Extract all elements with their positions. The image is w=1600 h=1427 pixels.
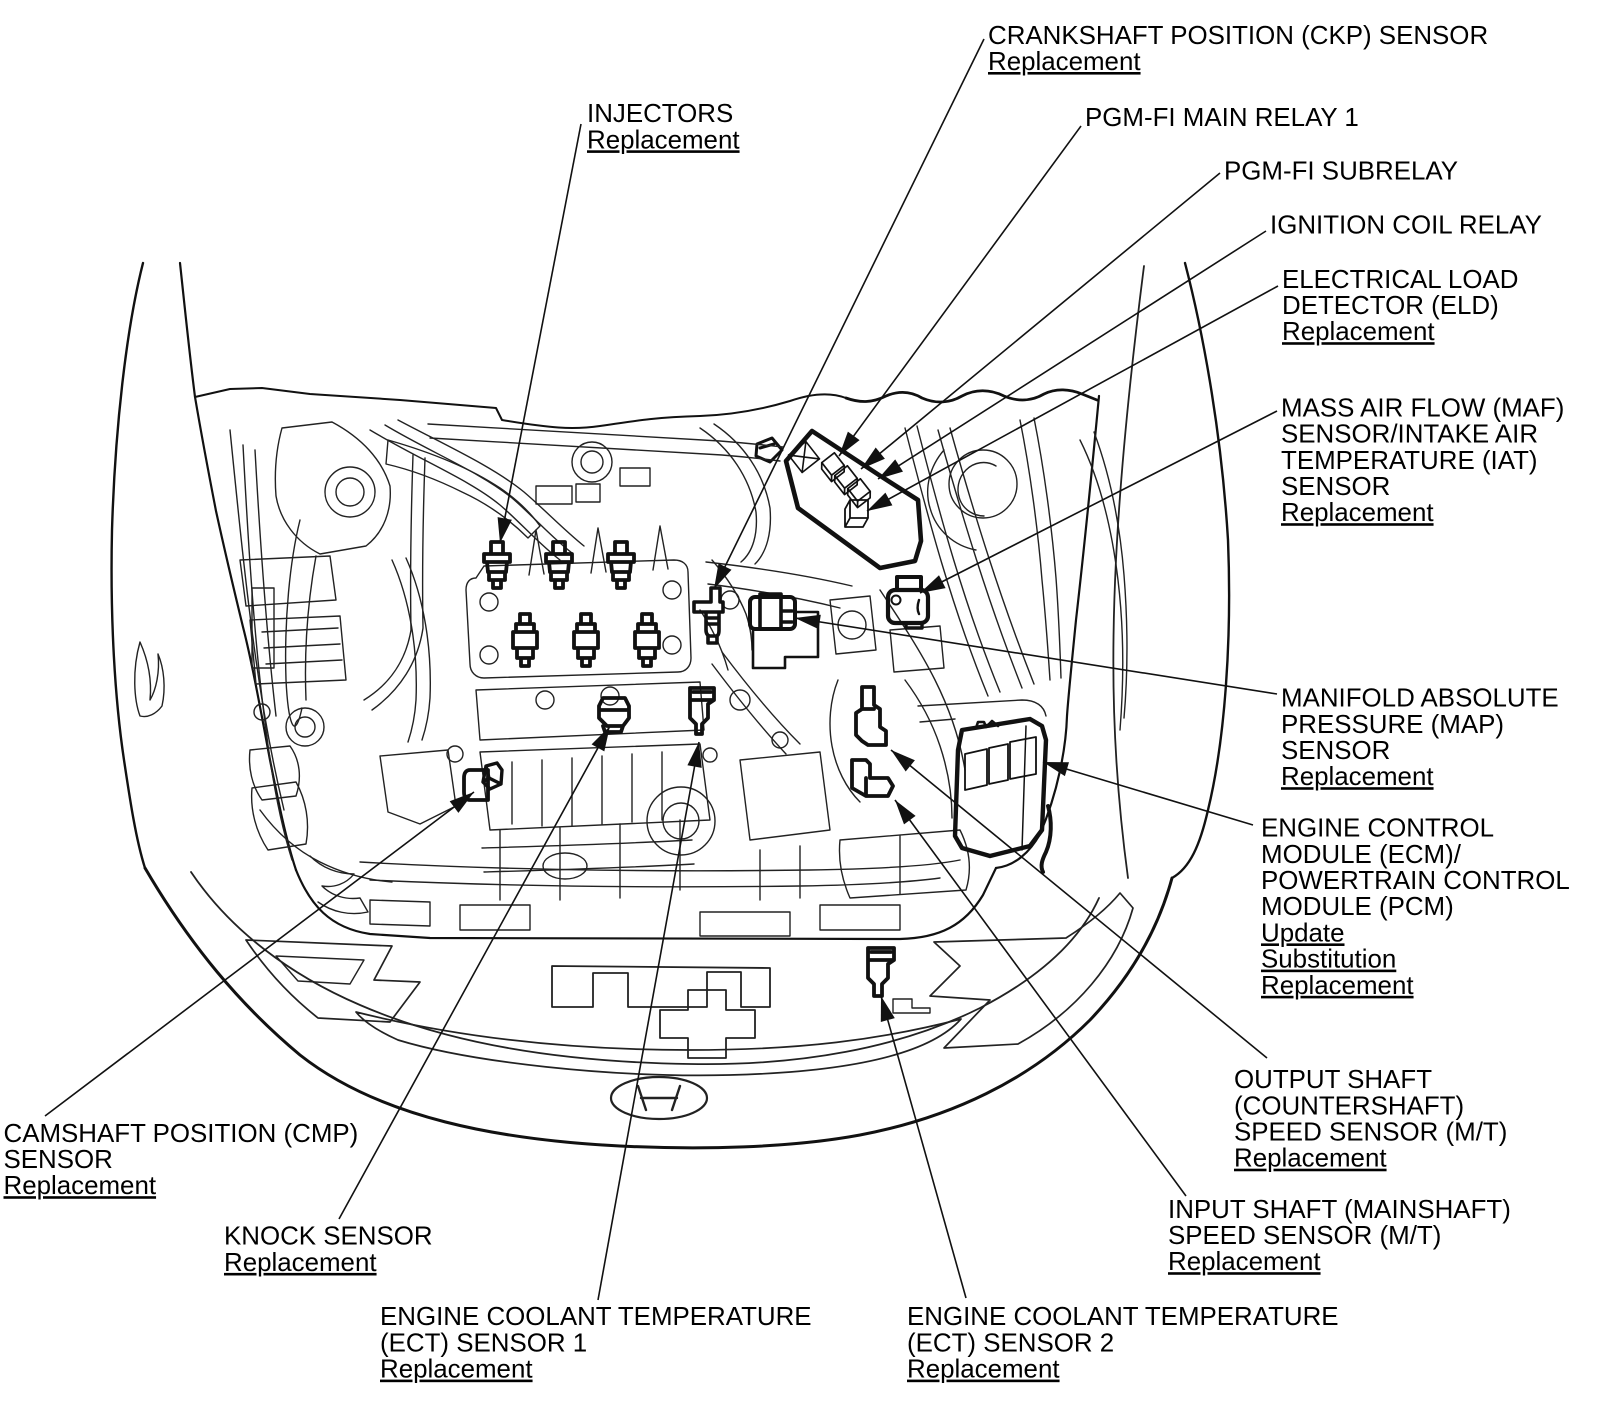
svg-text:IGNITION COIL RELAY: IGNITION COIL RELAY [1270,211,1542,239]
svg-text:Replacement: Replacement [907,1356,1060,1384]
svg-text:SENSOR/INTAKE AIR: SENSOR/INTAKE AIR [1281,421,1538,449]
svg-text:ENGINE COOLANT TEMPERATURE: ENGINE COOLANT TEMPERATURE [907,1303,1339,1331]
svg-text:Replacement: Replacement [988,48,1141,76]
svg-text:Replacement: Replacement [587,126,740,154]
svg-text:ELECTRICAL LOAD: ELECTRICAL LOAD [1282,266,1518,294]
svg-text:Update: Update [1261,919,1345,947]
svg-text:Replacement: Replacement [1234,1145,1387,1173]
svg-text:MANIFOLD ABSOLUTE: MANIFOLD ABSOLUTE [1281,685,1559,713]
svg-text:Replacement: Replacement [1281,763,1434,791]
svg-text:OUTPUT SHAFT: OUTPUT SHAFT [1234,1066,1432,1094]
svg-text:POWERTRAIN CONTROL: POWERTRAIN CONTROL [1261,867,1570,895]
svg-text:ENGINE CONTROL: ENGINE CONTROL [1261,815,1494,843]
svg-text:Replacement: Replacement [1281,499,1434,527]
svg-text:PGM-FI MAIN RELAY 1: PGM-FI MAIN RELAY 1 [1085,104,1359,132]
svg-text:Replacement: Replacement [1282,318,1435,346]
svg-text:INPUT SHAFT (MAINSHAFT): INPUT SHAFT (MAINSHAFT) [1168,1196,1511,1224]
svg-text:SENSOR: SENSOR [1281,473,1390,501]
svg-text:SENSOR: SENSOR [4,1146,113,1174]
svg-text:SPEED SENSOR (M/T): SPEED SENSOR (M/T) [1168,1222,1441,1250]
svg-text:CRANKSHAFT POSITION (CKP) SENS: CRANKSHAFT POSITION (CKP) SENSOR [988,22,1488,50]
svg-text:ENGINE COOLANT TEMPERATURE: ENGINE COOLANT TEMPERATURE [380,1303,812,1331]
svg-text:(COUNTERSHAFT): (COUNTERSHAFT) [1234,1092,1464,1120]
svg-text:SENSOR: SENSOR [1281,737,1390,765]
svg-text:MODULE (PCM): MODULE (PCM) [1261,893,1454,921]
svg-text:Replacement: Replacement [1261,972,1414,1000]
svg-text:KNOCK SENSOR: KNOCK SENSOR [224,1223,433,1251]
svg-text:SPEED SENSOR (M/T): SPEED SENSOR (M/T) [1234,1119,1507,1147]
svg-text:PRESSURE (MAP): PRESSURE (MAP) [1281,711,1504,739]
svg-text:Substitution: Substitution [1261,946,1396,974]
svg-text:Replacement: Replacement [224,1249,377,1277]
svg-text:CAMSHAFT POSITION (CMP): CAMSHAFT POSITION (CMP) [4,1120,359,1148]
svg-text:MASS AIR FLOW (MAF): MASS AIR FLOW (MAF) [1281,394,1564,422]
svg-text:DETECTOR (ELD): DETECTOR (ELD) [1282,292,1499,320]
svg-text:Replacement: Replacement [380,1356,533,1384]
svg-text:MODULE (ECM)/: MODULE (ECM)/ [1261,841,1462,869]
svg-text:Replacement: Replacement [1168,1248,1321,1276]
svg-text:PGM-FI SUBRELAY: PGM-FI SUBRELAY [1224,157,1458,185]
svg-text:TEMPERATURE (IAT): TEMPERATURE (IAT) [1281,447,1538,475]
svg-text:(ECT) SENSOR 2: (ECT) SENSOR 2 [907,1329,1114,1357]
svg-text:(ECT) SENSOR 1: (ECT) SENSOR 1 [380,1329,587,1357]
svg-text:Replacement: Replacement [4,1172,157,1200]
svg-text:INJECTORS: INJECTORS [587,100,733,128]
